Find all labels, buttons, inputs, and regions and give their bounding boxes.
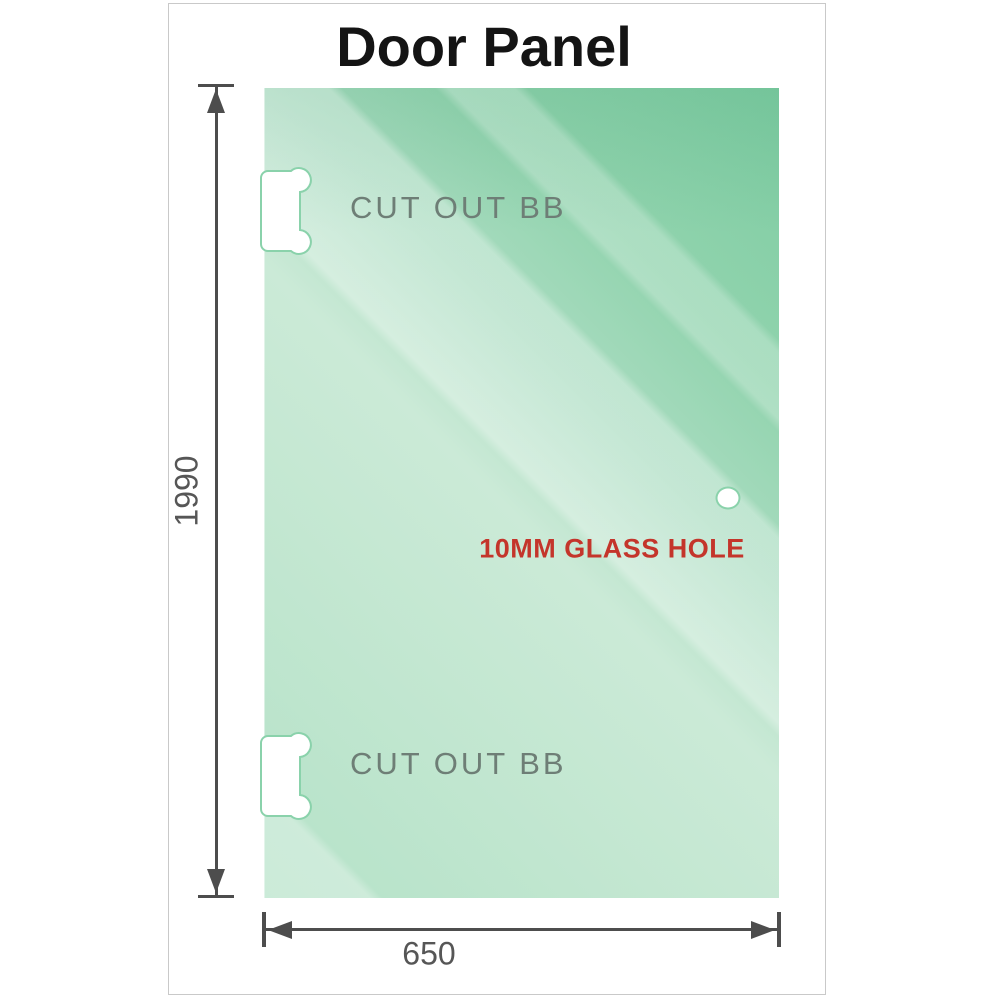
page-title: Door Panel — [156, 16, 812, 78]
door-panel-glass: CUT OUT BB CUT OUT BB 10MM GLASS HOLE — [264, 88, 779, 898]
cutout-label-bottom: CUT OUT BB — [350, 746, 567, 782]
glass-hole — [716, 487, 741, 510]
hinge-cutout-bottom — [259, 732, 313, 820]
arrow-up-icon — [207, 89, 225, 113]
width-dim-label: 650 — [402, 936, 455, 973]
height-dim-cap-bottom — [198, 895, 234, 898]
drawing-frame: Door Panel CUT OUT BB CUT OUT BB 10MM GL… — [168, 3, 826, 995]
width-dim-tick-right — [777, 912, 781, 947]
arrow-right-icon — [751, 921, 775, 939]
cutout-label-top: CUT OUT BB — [350, 190, 567, 226]
hinge-cutout-top — [259, 167, 313, 255]
arrow-down-icon — [207, 869, 225, 893]
height-dim-line — [215, 87, 218, 895]
screenshot-canvas: Door Panel CUT OUT BB CUT OUT BB 10MM GL… — [0, 0, 1000, 1000]
height-dim-label: 1990 — [169, 455, 206, 526]
glass-hole-label: 10MM GLASS HOLE — [479, 534, 745, 565]
width-dim-line — [266, 928, 777, 931]
arrow-left-icon — [268, 921, 292, 939]
